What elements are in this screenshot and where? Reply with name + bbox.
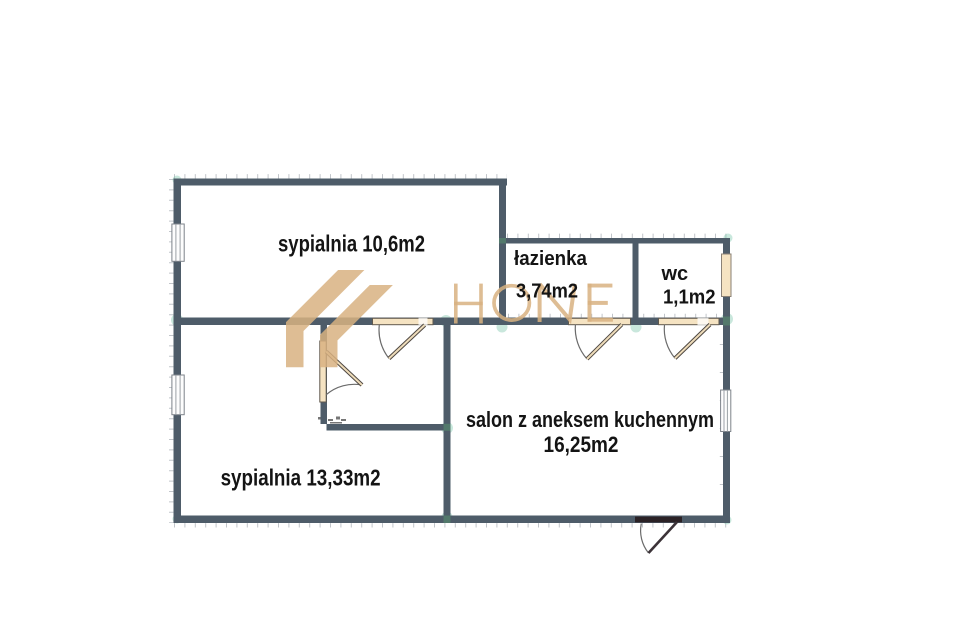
svg-text:łazienka: łazienka (514, 248, 588, 270)
svg-text:wc: wc (661, 263, 689, 285)
svg-text:16,25m2: 16,25m2 (544, 432, 619, 457)
svg-text:1,1m2: 1,1m2 (663, 287, 716, 309)
svg-text:sypialnia 10,6m2: sypialnia 10,6m2 (278, 231, 425, 257)
svg-text:sypialnia 13,33m2: sypialnia 13,33m2 (221, 465, 381, 491)
svg-text:3,74m2: 3,74m2 (516, 280, 578, 302)
svg-text:salon z aneksem kuchennym: salon z aneksem kuchennym (466, 407, 714, 432)
